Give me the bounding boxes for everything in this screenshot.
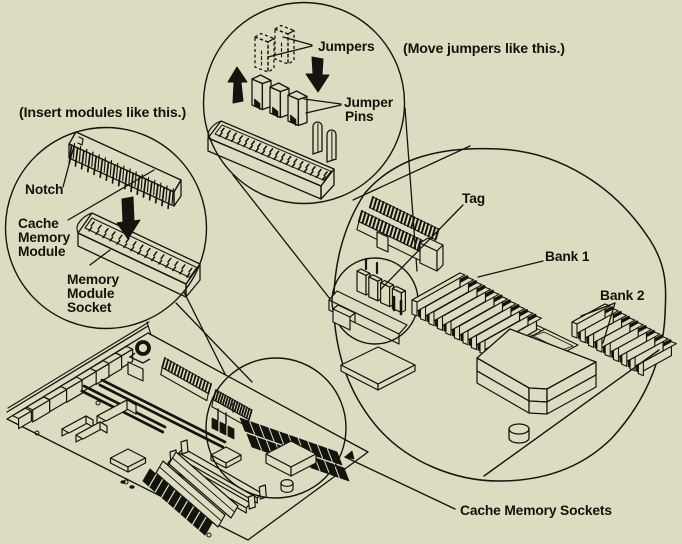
svg-text:Socket: Socket bbox=[67, 300, 112, 315]
svg-text:(Move jumpers like this.): (Move jumpers like this.) bbox=[403, 41, 565, 57]
svg-text:Memory: Memory bbox=[18, 230, 70, 245]
svg-text:Module: Module bbox=[18, 244, 66, 259]
svg-text:Bank 1: Bank 1 bbox=[545, 249, 590, 264]
svg-text:Cache: Cache bbox=[18, 216, 59, 231]
svg-text:Bank 2: Bank 2 bbox=[600, 288, 645, 303]
svg-text:Pins: Pins bbox=[345, 109, 374, 124]
svg-text:Module: Module bbox=[67, 286, 115, 301]
svg-text:Cache Memory Sockets: Cache Memory Sockets bbox=[460, 503, 612, 518]
svg-text:Notch: Notch bbox=[25, 182, 63, 197]
svg-text:(Insert modules like this.): (Insert modules like this.) bbox=[19, 105, 186, 121]
svg-text:Memory: Memory bbox=[67, 272, 119, 287]
svg-text:Tag: Tag bbox=[462, 191, 485, 206]
svg-text:Jumpers: Jumpers bbox=[318, 39, 375, 54]
svg-text:Jumper: Jumper bbox=[344, 95, 394, 110]
